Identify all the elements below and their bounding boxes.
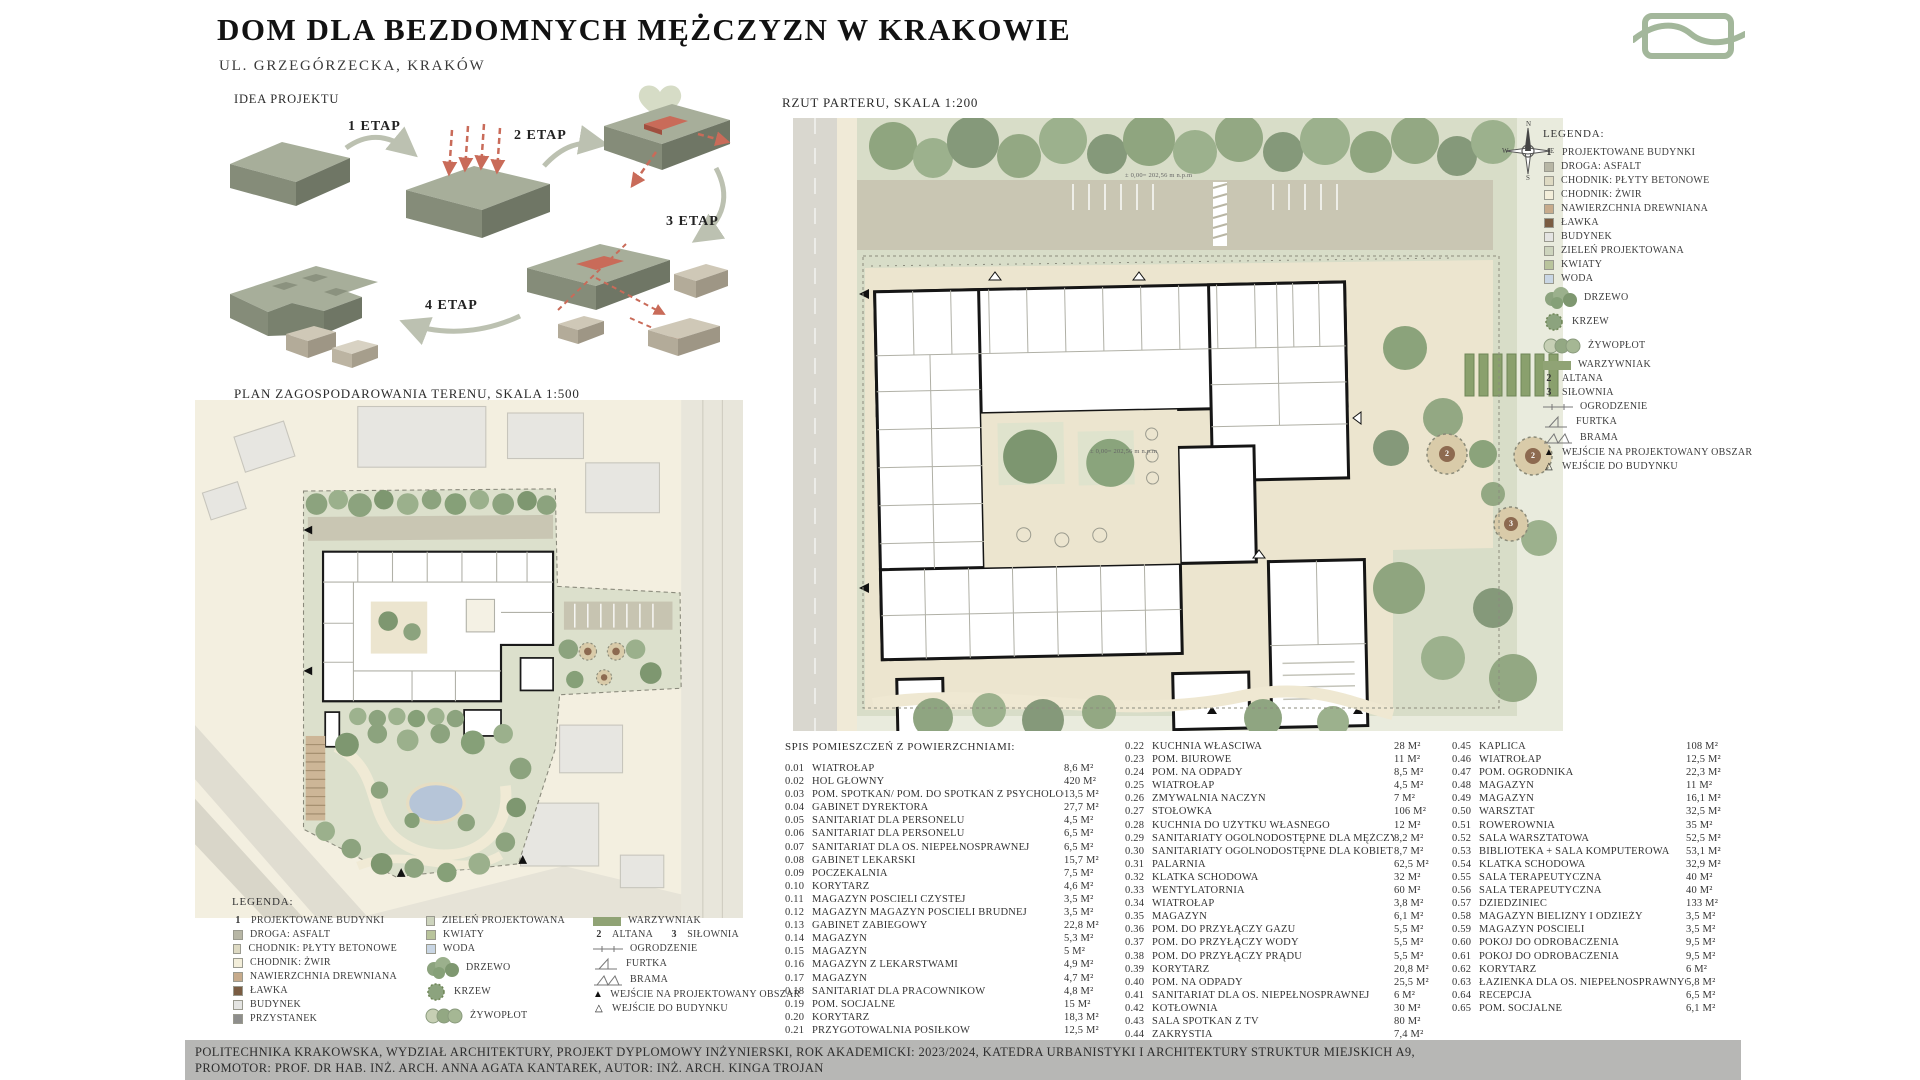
room-row: 0.36POM. DO PRZYŁĄCZY GAZU5,5 M² [1125, 924, 1442, 937]
room-row: 0.55SALA TERAPEUTYCZNA40 M² [1452, 872, 1734, 885]
room-row: 0.54KLATKA SCHODOWA32,9 M² [1452, 859, 1734, 872]
room-row: 0.15MAGAZYN5 M² [785, 946, 1112, 959]
legend-item: KWIATY [1543, 258, 1753, 272]
room-number: 0.33 [1125, 885, 1152, 896]
room-number: 0.16 [785, 959, 812, 970]
room-number: 0.05 [785, 815, 812, 826]
room-name: MAGAZYN [1479, 793, 1686, 804]
room-row: 0.65POM. SOCJALNE6,1 M² [1452, 1003, 1734, 1016]
room-row: 0.62KORYTARZ6 M² [1452, 964, 1734, 977]
legend-item: BRAMA [1543, 430, 1753, 446]
legend-item: WARZYWNIAK [1543, 358, 1753, 372]
room-area: 32,5 M² [1686, 806, 1734, 817]
page-title: DOM DLA BEZDOMNYCH MĘŻCZYZN W KRAKOWIE [217, 12, 1071, 48]
room-area: 4,7 M² [1064, 973, 1112, 984]
room-row: 0.38POM. DO PRZYŁĄCZY PRĄDU5,5 M² [1125, 951, 1442, 964]
legend-number: 3 [668, 929, 680, 941]
room-number: 0.55 [1452, 872, 1479, 883]
legend-item: KWIATY [425, 928, 565, 942]
building-entrance-icon: △ [593, 1003, 605, 1015]
legend-item: ▲WEJŚCIE NA PROJEKTOWANY OBSZAR [593, 988, 783, 1002]
legend-item: CHODNIK: ŻWIR [232, 956, 397, 970]
legend-label: CHODNIK: ŻWIR [250, 957, 331, 969]
legend-swatch [1544, 176, 1554, 186]
room-number: 0.30 [1125, 846, 1152, 857]
room-area: 18,3 M² [1064, 1012, 1112, 1023]
room-number: 0.31 [1125, 859, 1152, 870]
idea-diagram [228, 82, 733, 390]
room-name: MAGAZYN BIELIZNY I ODZIEŻY [1479, 911, 1686, 922]
room-name: SALA WARSZTATOWA [1479, 833, 1686, 844]
legend-swatch [1544, 190, 1554, 200]
room-name: SANITARIAT DLA PRACOWNIKÓW [812, 986, 1064, 997]
legend-swatch [233, 972, 243, 982]
legend-item: ZIELEŃ PROJEKTOWANA [1543, 244, 1753, 258]
room-area: 6 M² [1394, 990, 1442, 1001]
legend-left-col3: WARZYWNIAK2ALTANA3SIŁOWNIAOGRODZENIEFURT… [593, 914, 783, 1028]
room-name: KORYTARZ [1152, 964, 1394, 975]
room-number: 0.10 [785, 881, 812, 892]
room-area: 20,8 M² [1394, 964, 1442, 975]
room-area: 106 M² [1394, 806, 1442, 817]
legend-item: BUDYNEK [232, 998, 397, 1012]
room-area: 133 M² [1686, 898, 1734, 909]
room-name: WENTYLATORNIA [1152, 885, 1394, 896]
room-schedule-title: SPIS POMIESZCZEŃ Z POWIERZCHNIAMI: [785, 741, 1015, 753]
room-name: POCZEKALNIA [812, 868, 1064, 879]
room-area: 16,1 M² [1686, 793, 1734, 804]
room-row: 0.27STOŁÓWKA106 M² [1125, 806, 1442, 819]
room-row: 0.59MAGAZYN POŚCIELI3,5 M² [1452, 924, 1734, 937]
room-row: 0.01WIATROŁAP8,6 M² [785, 763, 1112, 776]
room-area: 62,5 M² [1394, 859, 1442, 870]
room-number: 0.61 [1452, 951, 1479, 962]
room-row: 0.05SANITARIAT DLA PERSONELU4,5 M² [785, 815, 1112, 828]
tree-icon [1543, 286, 1577, 310]
legend-label: WEJŚCIE NA PROJEKTOWANY OBSZAR [610, 989, 800, 1001]
legend-item: KRZEW [1543, 310, 1753, 334]
room-name: DZIEDZINIEC [1479, 898, 1686, 909]
room-name: SALA SPOTKAŃ Z TV [1152, 1016, 1394, 1027]
room-number: 0.03 [785, 789, 812, 800]
room-area: 11 M² [1686, 780, 1734, 791]
room-number: 0.65 [1452, 1003, 1479, 1014]
room-number: 0.09 [785, 868, 812, 879]
room-number: 0.06 [785, 828, 812, 839]
room-number: 0.08 [785, 855, 812, 866]
legend-swatch [233, 958, 243, 968]
legend-item: WODA [425, 942, 565, 956]
legend-item: OGRODZENIE [1543, 400, 1753, 414]
legend-label: NAWIERZCHNIA DREWNIANA [250, 971, 397, 983]
room-name: KLATKA SCHODOWA [1152, 872, 1394, 883]
legend-item: 2ALTANA [1543, 372, 1753, 386]
legend-label: WARZYWNIAK [628, 915, 701, 927]
legend-label: PROJEKTOWANE BUDYNKI [251, 915, 384, 927]
legend-label: DROGA: ASFALT [250, 929, 330, 941]
room-name: GABINET ZABIEGOWY [812, 920, 1064, 931]
room-name: MAGAZYN [812, 933, 1064, 944]
legend-item: BUDYNEK [1543, 230, 1753, 244]
legend-swatch [1544, 204, 1554, 214]
room-name: MAGAZYN Z LEKARSTWAMI [812, 959, 1064, 970]
section-label-floorplan: RZUT PARTERU, SKALA 1:200 [782, 95, 978, 111]
room-number: 0.39 [1125, 964, 1152, 975]
legend-item: KRZEW [425, 980, 565, 1004]
room-number: 0.53 [1452, 846, 1479, 857]
room-area: 6 M² [1686, 964, 1734, 975]
room-row: 0.41SANITARIAT DLA OS. NIEPEŁNOSPRAWNEJ6… [1125, 990, 1442, 1003]
legend-item: ŁAWKA [1543, 216, 1753, 230]
room-row: 0.63ŁAZIENKA DLA OS. NIEPEŁNOSPRAWNYCH5,… [1452, 977, 1734, 990]
room-row: 0.29SANITARIATY OGÓLNODOSTĘPNE DLA MĘŻCZ… [1125, 833, 1442, 846]
room-name: KUCHNIA WŁAŚCIWA [1152, 741, 1394, 752]
room-row: 0.40POM. NA ODPADY25,5 M² [1125, 977, 1442, 990]
room-row: 0.50WARSZTAT32,5 M² [1452, 806, 1734, 819]
room-number: 0.52 [1452, 833, 1479, 844]
floor-plan-drawing [793, 118, 1563, 731]
legend-label: NAWIERZCHNIA DREWNIANA [1561, 203, 1708, 215]
room-number: 0.02 [785, 776, 812, 787]
room-number: 0.26 [1125, 793, 1152, 804]
room-number: 0.37 [1125, 937, 1152, 948]
room-number: 0.38 [1125, 951, 1152, 962]
room-area: 108 M² [1686, 741, 1734, 752]
room-area: 53,1 M² [1686, 846, 1734, 857]
room-number: 0.57 [1452, 898, 1479, 909]
room-name: PALARNIA [1152, 859, 1394, 870]
legend-left-col1: 1PROJEKTOWANE BUDYNKIDROGA: ASFALTCHODNI… [232, 914, 397, 1028]
room-name: POM. DO PRZYŁĄCZY PRĄDU [1152, 951, 1394, 962]
room-number: 0.62 [1452, 964, 1479, 975]
room-number: 0.29 [1125, 833, 1152, 844]
room-area: 6,5 M² [1064, 828, 1112, 839]
room-area: 35 M² [1686, 820, 1734, 831]
room-area: 3,8 M² [1394, 898, 1442, 909]
room-name: SALA TERAPEUTYCZNA [1479, 872, 1686, 883]
legend-label: PRZYSTANEK [250, 1013, 317, 1025]
footer-line2: PROMOTOR: PROF. DR HAB. INŻ. ARCH. ANNA … [195, 1060, 1741, 1076]
legend-label: CHODNIK: PŁYTY BETONOWE [248, 943, 397, 955]
room-name: SANITARIAT DLA OS. NIEPEŁNOSPRAWNEJ [812, 842, 1064, 853]
room-number: 0.01 [785, 763, 812, 774]
compass-w: W [1502, 147, 1509, 155]
room-area: 4,8 M² [1064, 986, 1112, 997]
room-number: 0.14 [785, 933, 812, 944]
room-number: 0.17 [785, 973, 812, 984]
room-number: 0.32 [1125, 872, 1152, 883]
legend-swatch [1544, 232, 1554, 242]
room-name: WIATROŁAP [1479, 754, 1686, 765]
stage-label-2: 2 ETAP [514, 128, 567, 144]
room-number: 0.20 [785, 1012, 812, 1023]
room-name: WIATROŁAP [812, 763, 1064, 774]
room-row: 0.49MAGAZYN16,1 M² [1452, 793, 1734, 806]
room-name: KUCHNIA DO UŻYTKU WŁASNEGO [1152, 820, 1394, 831]
room-name: KAPLICA [1479, 741, 1686, 752]
room-area: 8,6 M² [1064, 763, 1112, 774]
room-row: 0.07SANITARIAT DLA OS. NIEPEŁNOSPRAWNEJ6… [785, 842, 1112, 855]
room-name: RECEPCJA [1479, 990, 1686, 1001]
room-row: 0.43SALA SPOTKAŃ Z TV80 M² [1125, 1016, 1442, 1029]
room-number: 0.59 [1452, 924, 1479, 935]
page-subtitle: UL. GRZEGÓRZECKA, KRAKÓW [219, 58, 486, 75]
legend-item: DROGA: ASFALT [232, 928, 397, 942]
room-name: MAGAZYN [812, 946, 1064, 957]
room-number: 0.63 [1452, 977, 1479, 988]
legend-swatch [1544, 162, 1554, 172]
site-entrance-icon: ▲ [1543, 447, 1555, 459]
legend-right: LEGENDA: 1PROJEKTOWANE BUDYNKIDROGA: ASF… [1543, 128, 1753, 474]
room-area: 32 M² [1394, 872, 1442, 883]
room-name: POM. OGRODNIKA [1479, 767, 1686, 778]
legend-swatch [233, 930, 243, 940]
gate-icon [1543, 414, 1569, 430]
legend-swatch [233, 1000, 243, 1010]
room-name: SANITARIAT DLA OS. NIEPEŁNOSPRAWNEJ [1152, 990, 1394, 1001]
silownia-marker: 3 [1505, 518, 1517, 530]
room-row: 0.20KORYTARZ18,3 M² [785, 1012, 1112, 1025]
legend-label: ŁAWKA [1561, 217, 1599, 229]
room-number: 0.40 [1125, 977, 1152, 988]
legend-item: CHODNIK: ŻWIR [1543, 188, 1753, 202]
compass-n: N [1526, 120, 1531, 128]
legend-item: ŻYWOPŁOT [425, 1004, 565, 1028]
legend-item: WODA [1543, 272, 1753, 286]
room-row: 0.25WIATROŁAP4,5 M² [1125, 780, 1442, 793]
room-row: 0.56SALA TERAPEUTYCZNA40 M² [1452, 885, 1734, 898]
legend-label: OGRODZENIE [1580, 401, 1647, 413]
legend-label: SIŁOWNIA [1562, 387, 1614, 399]
room-name: MAGAZYN [812, 973, 1064, 984]
room-number: 0.41 [1125, 990, 1152, 1001]
room-number: 0.45 [1452, 741, 1479, 752]
legend-item: NAWIERZCHNIA DREWNIANA [1543, 202, 1753, 216]
legend-number: 2 [1543, 373, 1555, 385]
room-area: 3,5 M² [1686, 924, 1734, 935]
room-schedule-col1: 0.01WIATROŁAP8,6 M²0.02HOL GŁÓWNY420 M²0… [785, 763, 1112, 1038]
room-area: 22,3 M² [1686, 767, 1734, 778]
legend-swatch [233, 944, 241, 954]
legend-swatch [1544, 274, 1554, 284]
room-area: 4,5 M² [1394, 780, 1442, 791]
legend-item: BRAMA [593, 972, 783, 988]
room-row: 0.02HOL GŁÓWNY420 M² [785, 776, 1112, 789]
room-area: 40 M² [1686, 885, 1734, 896]
legend-item: OGRODZENIE [593, 942, 783, 956]
legend-label: KRZEW [1572, 316, 1609, 328]
legend-number: 3 [1543, 387, 1555, 399]
legend-left: LEGENDA: 1PROJEKTOWANE BUDYNKIDROGA: ASF… [232, 896, 783, 1028]
room-row: 0.14MAGAZYN5,3 M² [785, 933, 1112, 946]
room-area: 420 M² [1064, 776, 1112, 787]
room-area: 15,7 M² [1064, 855, 1112, 866]
room-row: 0.10KORYTARZ4,6 M² [785, 881, 1112, 894]
presentation-board: DOM DLA BEZDOMNYCH MĘŻCZYZN W KRAKOWIE U… [0, 0, 1920, 1080]
room-name: POM. SPOTKAŃ/ POM. DO SPOTKAŃ Z PSYCHOLO… [812, 789, 1064, 800]
room-area: 13,5 M² [1064, 789, 1112, 800]
room-name: ŁAZIENKA DLA OS. NIEPEŁNOSPRAWNYCH [1479, 977, 1686, 988]
idea-massing-svg [228, 82, 733, 390]
room-number: 0.22 [1125, 741, 1152, 752]
room-area: 12 M² [1394, 820, 1442, 831]
room-name: KOTŁOWNIA [1152, 1003, 1394, 1014]
room-area: 4,6 M² [1064, 881, 1112, 892]
room-area: 12,5 M² [1064, 1025, 1112, 1036]
legend-number: 1 [232, 915, 244, 927]
room-area: 60 M² [1394, 885, 1442, 896]
room-area: 6,5 M² [1064, 842, 1112, 853]
building-entrance-icon: △ [1543, 461, 1555, 473]
legend-label: ŻYWOPŁOT [1588, 340, 1645, 352]
room-area: 3,5 M² [1686, 911, 1734, 922]
legend-label: ŁAWKA [250, 985, 288, 997]
fence-icon [593, 944, 623, 954]
room-name: SANITARIAT DLA PERSONELU [812, 815, 1064, 826]
room-number: 0.11 [785, 894, 812, 905]
room-number: 0.56 [1452, 885, 1479, 896]
legend-label: CHODNIK: ŻWIR [1561, 189, 1642, 201]
room-number: 0.42 [1125, 1003, 1152, 1014]
room-name: HOL GŁÓWNY [812, 776, 1064, 787]
room-schedule-col2: 0.22KUCHNIA WŁAŚCIWA28 M²0.23POM. BIUROW… [1125, 741, 1442, 1042]
room-name: PRZYGOTOWALNIA POSIŁKÓW [812, 1025, 1064, 1036]
legend-right-items: 1PROJEKTOWANE BUDYNKIDROGA: ASFALTCHODNI… [1543, 146, 1753, 474]
room-row: 0.21PRZYGOTOWALNIA POSIŁKÓW12,5 M² [785, 1025, 1112, 1038]
room-number: 0.15 [785, 946, 812, 957]
room-number: 0.46 [1452, 754, 1479, 765]
legend-item: DROGA: ASFALT [1543, 160, 1753, 174]
legend-item: PRZYSTANEK [232, 1012, 397, 1026]
room-area: 30 M² [1394, 1003, 1442, 1014]
legend-item: DRZEWO [1543, 286, 1753, 310]
room-name: WARSZTAT [1479, 806, 1686, 817]
room-area: 8,5 M² [1394, 767, 1442, 778]
room-row: 0.11MAGAZYN POŚCIELI CZYSTEJ3,5 M² [785, 894, 1112, 907]
room-number: 0.35 [1125, 911, 1152, 922]
room-area: 4,5 M² [1064, 815, 1112, 826]
room-area: 28 M² [1394, 741, 1442, 752]
gate-icon [593, 956, 619, 972]
room-area: 7 M² [1394, 793, 1442, 804]
legend-label: BUDYNEK [1561, 231, 1612, 243]
legend-swatch [1544, 218, 1554, 228]
legend-title: LEGENDA: [232, 896, 783, 908]
room-name: POM. NA ODPADY [1152, 767, 1394, 778]
legend-label: WEJŚCIE NA PROJEKTOWANY OBSZAR [1562, 447, 1752, 459]
studio-logo-icon [1633, 6, 1745, 64]
room-number: 0.21 [785, 1025, 812, 1036]
legend-label: DRZEWO [466, 962, 511, 974]
room-name: POM. NA ODPADY [1152, 977, 1394, 988]
room-area: 52,5 M² [1686, 833, 1734, 844]
room-name: SANITARIATY OGÓLNODOSTĘPNE DLA MĘŻCZYZN [1152, 833, 1394, 844]
legend-label: OGRODZENIE [630, 943, 697, 955]
room-row: 0.26ZMYWALNIA NACZYŃ7 M² [1125, 793, 1442, 806]
room-area: 5,5 M² [1394, 951, 1442, 962]
room-area: 5 M² [1064, 946, 1112, 957]
room-area: 15 M² [1064, 999, 1112, 1010]
legend-swatch [1544, 260, 1554, 270]
room-number: 0.58 [1452, 911, 1479, 922]
room-name: BIBLIOTEKA + SALA KOMPUTEROWA [1479, 846, 1686, 857]
room-row: 0.23POM. BIUROWE11 M² [1125, 754, 1442, 767]
room-number: 0.07 [785, 842, 812, 853]
room-row: 0.45KAPLICA108 M² [1452, 741, 1734, 754]
legend-swatch [1544, 246, 1554, 256]
room-area: 6,1 M² [1686, 1003, 1734, 1014]
room-row: 0.37POM. DO PRZYŁĄCZY WODY5,5 M² [1125, 937, 1442, 950]
room-name: POM. DO PRZYŁĄCZY WODY [1152, 937, 1394, 948]
room-row: 0.18SANITARIAT DLA PRACOWNIKÓW4,8 M² [785, 986, 1112, 999]
room-number: 0.50 [1452, 806, 1479, 817]
room-number: 0.51 [1452, 820, 1479, 831]
room-area: 7,5 M² [1064, 868, 1112, 879]
legend-item: 1PROJEKTOWANE BUDYNKI [232, 914, 397, 928]
room-number: 0.54 [1452, 859, 1479, 870]
room-area: 8,7 M² [1394, 846, 1442, 857]
room-number: 0.60 [1452, 937, 1479, 948]
room-row: 0.57DZIEDZINIEC133 M² [1452, 898, 1734, 911]
legend-label: BRAMA [630, 974, 668, 986]
legend-label: KWIATY [443, 929, 484, 941]
hedge-icon [1543, 338, 1581, 354]
room-row: 0.51ROWEROWNIA35 M² [1452, 820, 1734, 833]
room-number: 0.28 [1125, 820, 1152, 831]
legend-label: WODA [443, 943, 475, 955]
room-row: 0.60POKÓJ DO ODROBACZENIA9,5 M² [1452, 937, 1734, 950]
room-name: MAGAZYN [1152, 911, 1394, 922]
tree-icon [425, 956, 459, 980]
room-area: 7,4 M² [1394, 1029, 1442, 1040]
legend-number: 2 [593, 929, 605, 941]
footer-bar: POLITECHNIKA KRAKOWSKA, WYDZIAŁ ARCHITEK… [185, 1040, 1741, 1080]
room-name: MAGAZYN POŚCIELI CZYSTEJ [812, 894, 1064, 905]
legend-label: ZIELEŃ PROJEKTOWANA [1561, 245, 1684, 257]
room-area: 22,8 M² [1064, 920, 1112, 931]
legend-item: ▲WEJŚCIE NA PROJEKTOWANY OBSZAR [1543, 446, 1753, 460]
room-row: 0.12MAGAZYN MAGAZYN POŚCIELI BRUDNEJ3,5 … [785, 907, 1112, 920]
room-name: ZMYWALNIA NACZYŃ [1152, 793, 1394, 804]
room-name: ROWEROWNIA [1479, 820, 1686, 831]
room-number: 0.44 [1125, 1029, 1152, 1040]
vegetable-bed-icon [593, 917, 621, 926]
room-area: 3,5 M² [1064, 894, 1112, 905]
room-name: KORYTARZ [812, 1012, 1064, 1023]
room-number: 0.04 [785, 802, 812, 813]
shrub-icon [425, 981, 447, 1003]
altana-marker: 2 [1527, 450, 1539, 462]
legend-label: DROGA: ASFALT [1561, 161, 1641, 173]
legend-item: 3SIŁOWNIA [1543, 386, 1753, 400]
footer-line1: POLITECHNIKA KRAKOWSKA, WYDZIAŁ ARCHITEK… [195, 1044, 1741, 1060]
room-number: 0.43 [1125, 1016, 1152, 1027]
room-area: 6,5 M² [1686, 990, 1734, 1001]
room-area: 5,8 M² [1686, 977, 1734, 988]
room-area: 25,5 M² [1394, 977, 1442, 988]
room-row: 0.04GABINET DYREKTORA27,7 M² [785, 802, 1112, 815]
room-row: 0.30SANITARIATY OGÓLNODOSTĘPNE DLA KOBIE… [1125, 846, 1442, 859]
legend-item: CHODNIK: PŁYTY BETONOWE [1543, 174, 1753, 188]
room-number: 0.36 [1125, 924, 1152, 935]
room-name: POM. SOCJALNE [812, 999, 1064, 1010]
room-area: 80 M² [1394, 1016, 1442, 1027]
room-row: 0.48MAGAZYN11 M² [1452, 780, 1734, 793]
room-area: 5,3 M² [1064, 933, 1112, 944]
stage-label-1: 1 ETAP [348, 119, 401, 135]
legend-item: DRZEWO [425, 956, 565, 980]
legend-label: PROJEKTOWANE BUDYNKI [1562, 147, 1695, 159]
